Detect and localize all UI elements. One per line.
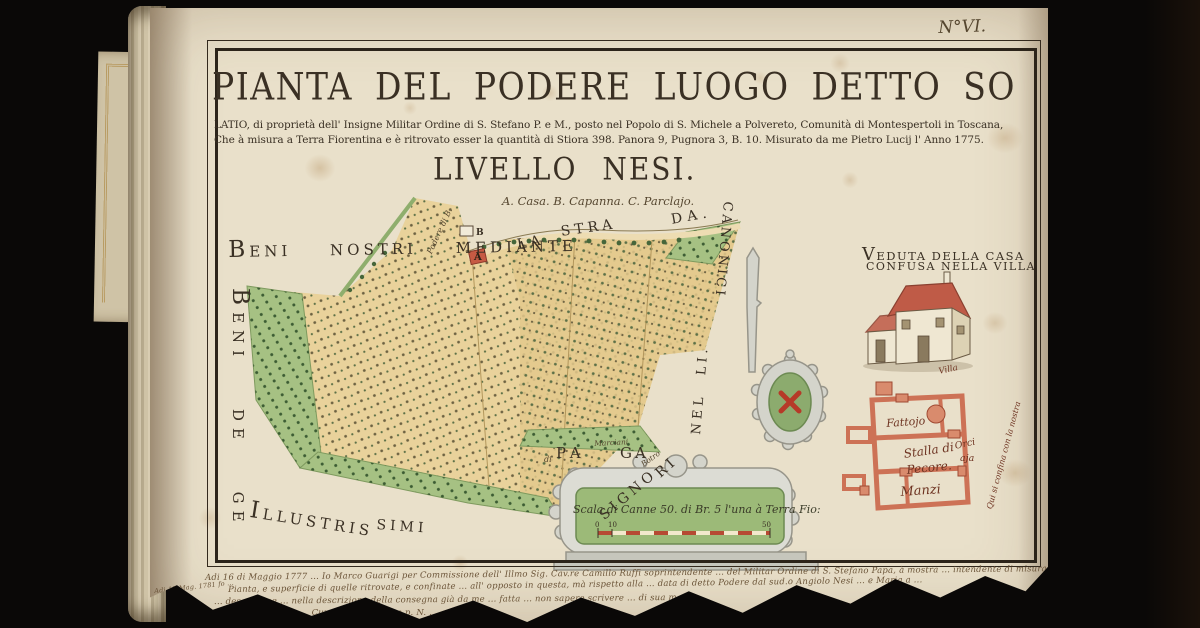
scale-caption: Scala di Canne 50. di Br. 5 l'una à Terr… [573, 504, 821, 515]
label-simi: SIMI [376, 518, 428, 536]
map-title: PIANTA DEL PODERE LUOGO DETTO SO [212, 68, 1016, 105]
map-subtitle: LIVELLO NESI. [433, 154, 696, 185]
label-ga: GA [620, 446, 649, 461]
plan-label-manzi: Manzi [900, 483, 941, 499]
scale-tick-10: 10 [608, 522, 617, 529]
marker-a: A [474, 253, 482, 263]
scale-tick-50: 50 [762, 522, 771, 529]
manuscript-line-3: ... descrizione ... nella descrizione de… [214, 594, 705, 607]
label-beni-de-ge: BENI DE GE [229, 288, 252, 529]
label-pa: PA [556, 446, 586, 461]
page-text-layer: N°VI. PIANTA DEL PODERE LUOGO DETTO SO L… [150, 8, 1048, 622]
plan-label-fattojo: Fattojo [886, 415, 926, 429]
photographed-atlas-page: N°VI. PIANTA DEL PODERE LUOGO DETTO SO L… [0, 0, 1200, 628]
scale-tick-0: 0 [595, 522, 599, 529]
marker-b: B [476, 229, 484, 238]
title-line-3: Che à misura a Terra Fiorentina e è ritr… [214, 135, 984, 146]
veduta-caption-2: CONFUSA NELLA VILLA [866, 261, 1036, 272]
plan-label-aja: aja [960, 454, 974, 464]
legend-line: A. Casa. B. Capanna. C. Parclajo. [502, 196, 694, 208]
page-number: N°VI. [938, 18, 986, 37]
title-line-2: LATIO, di proprietà dell' Insigne Milita… [214, 120, 1003, 131]
label-di: di [544, 456, 552, 464]
